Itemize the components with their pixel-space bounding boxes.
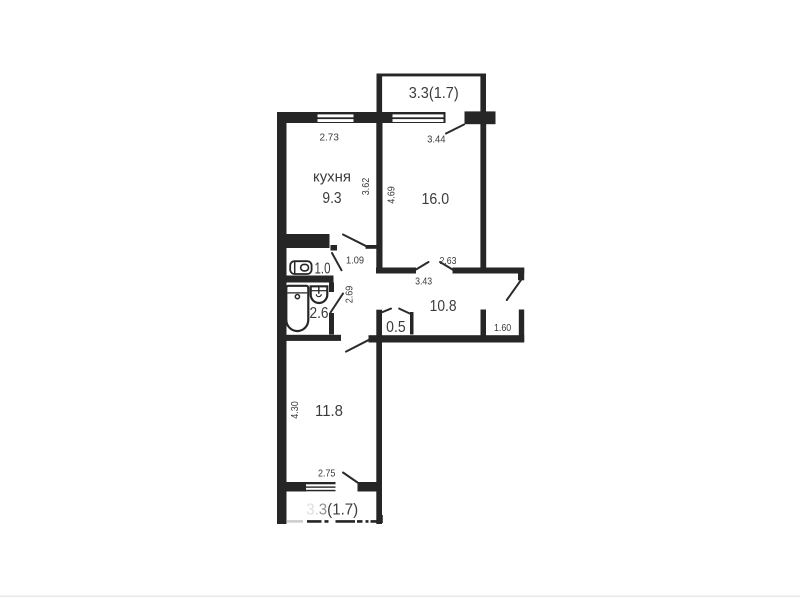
svg-text:3.3(1.7): 3.3(1.7) [306, 501, 358, 518]
svg-text:2.75: 2.75 [318, 469, 336, 480]
svg-text:3.44: 3.44 [427, 134, 446, 145]
svg-text:9.3: 9.3 [322, 190, 341, 207]
svg-text:16.0: 16.0 [422, 191, 450, 208]
svg-text:4.69: 4.69 [387, 186, 398, 204]
svg-text:11.8: 11.8 [315, 403, 343, 420]
svg-text:1.60: 1.60 [494, 323, 512, 334]
svg-text:2.6: 2.6 [310, 305, 329, 322]
svg-text:1.0: 1.0 [315, 260, 331, 277]
svg-text:2.69: 2.69 [345, 286, 356, 304]
svg-text:3.43: 3.43 [415, 277, 432, 288]
svg-text:1.09: 1.09 [346, 256, 364, 267]
svg-text:3.3(1.7): 3.3(1.7) [409, 85, 459, 102]
svg-text:2.63: 2.63 [440, 256, 457, 267]
svg-text:4.30: 4.30 [290, 401, 301, 419]
svg-text:2.73: 2.73 [320, 132, 340, 143]
svg-text:10.8: 10.8 [430, 298, 457, 315]
svg-text:3.62: 3.62 [361, 178, 372, 196]
svg-text:кухня: кухня [313, 169, 351, 186]
svg-text:0.5: 0.5 [386, 319, 406, 336]
